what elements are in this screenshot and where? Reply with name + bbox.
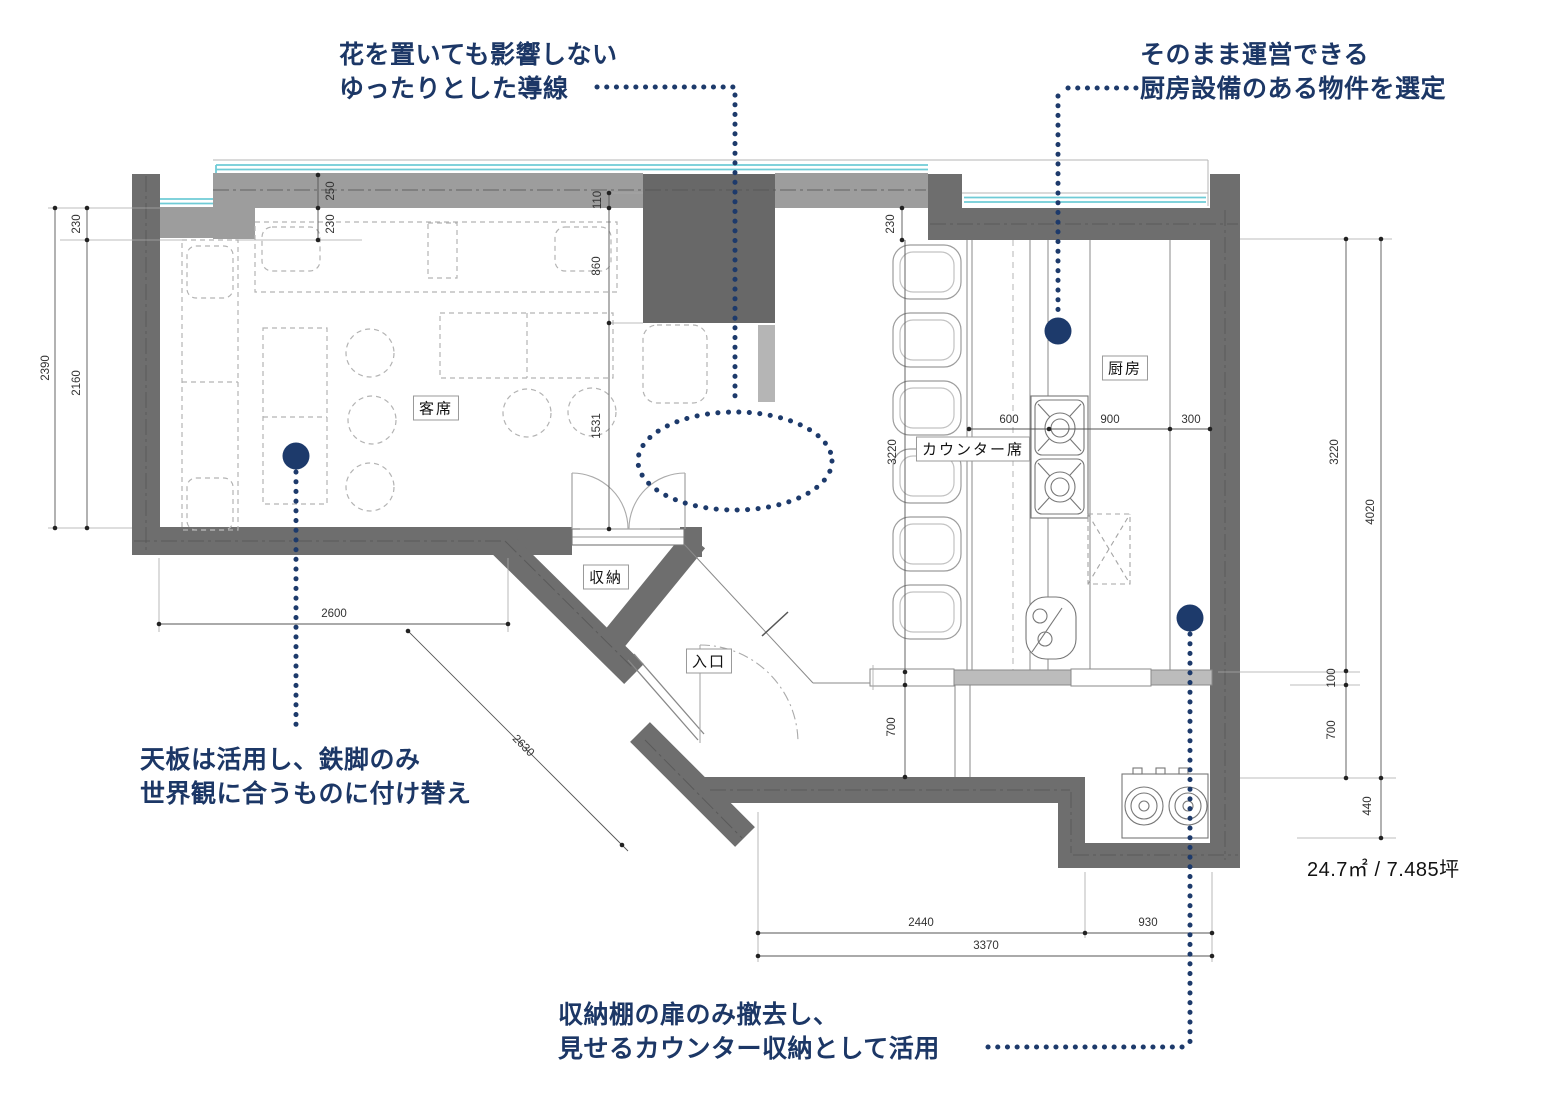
column-block [643,174,775,323]
dim-right-total: 4020 [1365,499,1377,525]
pass-counter [870,669,1212,686]
dim-left-total: 2390 [40,355,52,381]
area-label: 24.7㎡ / 7.485坪 [1307,853,1460,882]
dim-right-100: 100 [1326,668,1338,687]
room-label-entrance: 入口 [686,649,732,674]
callout-dot-kitchen [1045,318,1072,345]
annotation-flow-line: 花を置いても影響しない ゆったりとした導線 [339,38,618,106]
dim-top-bench: 230 [325,214,337,233]
dim-counter-left-lower: 700 [886,717,898,736]
dim-center-block: 860 [591,256,603,275]
dim-bottom-total: 3370 [973,940,999,952]
dim-left-wall: 230 [71,214,83,233]
dim-kitchen-900: 900 [1100,414,1119,426]
annotation-line: 見せるカウンター収納として活用 [558,1032,940,1066]
guest-furniture [182,222,707,530]
dim-kitchen-600: 600 [999,414,1018,426]
room-label-kitchen: 厨房 [1102,356,1148,381]
callout-dot-storage [1177,605,1204,632]
dim-bottom-930: 930 [1138,917,1157,929]
flow-ellipse [638,412,832,510]
dim-center-opening: 1531 [591,413,603,439]
room-label-storage: 収納 [583,565,629,590]
annotation-line: ゆったりとした導線 [339,72,618,106]
room-label-counter: カウンター席 [916,437,1030,462]
annotation-line: 厨房設備のある物件を選定 [1140,72,1446,106]
dim-bottom-left: 2600 [321,608,347,620]
annotation-line: そのまま運営できる [1140,38,1446,72]
callout-dot-table [283,443,310,470]
dim-bottom-2440: 2440 [908,917,934,929]
doors [572,473,798,743]
annotation-storage-counter: 収納棚の扉のみ撤去し、 見せるカウンター収納として活用 [558,998,940,1066]
dim-kitchen-300: 300 [1181,414,1200,426]
annotation-line: 世界観に合うものに付け替え [140,777,472,811]
dim-left-inner: 2160 [71,370,83,396]
annotation-line: 天板は活用し、鉄脚のみ [140,743,472,777]
partition-stub [758,325,775,402]
dim-right-440: 440 [1362,796,1374,815]
dim-counter-wall: 230 [885,214,897,233]
dim-top-wall: 250 [325,181,337,200]
annotation-kitchen-equipment: そのまま運営できる 厨房設備のある物件を選定 [1140,38,1446,106]
room-label-guest: 客席 [413,396,459,421]
floor-plan-page: 花を置いても影響しない ゆったりとした導線 そのまま運営できる 厨房設備のある物… [0,0,1568,1118]
annotation-table-legs: 天板は活用し、鉄脚のみ 世界観に合うものに付け替え [140,743,472,811]
dim-center-top: 110 [592,191,604,209]
dim-right-inner: 3220 [1329,439,1341,465]
annotation-line: 花を置いても影響しない [339,38,618,72]
dim-right-700: 700 [1326,720,1338,739]
floor-plan-drawing [0,0,1568,1118]
annotation-line: 収納棚の扉のみ撤去し、 [558,998,940,1032]
dim-counter-left: 3220 [887,439,899,465]
wall-diagonal-left [500,542,634,674]
